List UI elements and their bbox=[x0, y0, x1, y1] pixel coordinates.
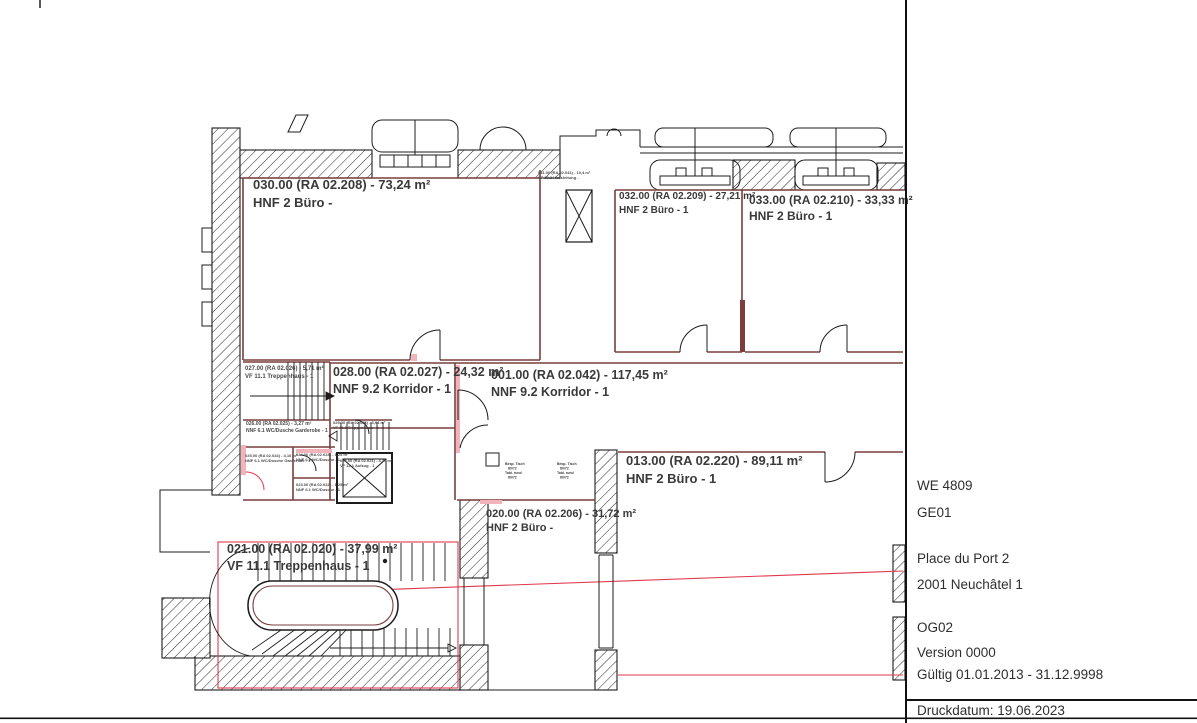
floor-plan-drawing: 030.00 (RA 02.208) - 73,24 m² HNF 2 Büro… bbox=[0, 0, 1197, 723]
room-label-013-line2: HNF 2 Büro - 1 bbox=[626, 471, 716, 486]
radiator-left-bay bbox=[380, 155, 450, 167]
title-block-we: WE 4809 bbox=[917, 478, 973, 493]
balcony-outline-1 bbox=[655, 128, 773, 147]
room-label-028-line1: 028.00 (RA 02.027) - 24,32 m² bbox=[333, 365, 503, 379]
room-label-024-line2: NNF 6.1 WC/Dusche - 1 bbox=[296, 457, 341, 462]
room-label-020-line2: HNF 2 Büro - bbox=[486, 522, 554, 534]
room-label-029-line2: VF 11.1 Treppenhaus - 1 bbox=[333, 425, 379, 430]
furniture-note-1-l3: Tabl. rund bbox=[505, 471, 522, 475]
facade-arch-left bbox=[480, 127, 526, 150]
furniture-note-2-l3: Tabl. rund bbox=[557, 471, 574, 475]
room-label-013-line1: 013.00 (RA 02.220) - 89,11 m² bbox=[626, 453, 803, 468]
title-block-version: Version 0000 bbox=[917, 645, 996, 660]
room-label-022-line2: VF 12.1 Aufzug - 1 bbox=[340, 463, 375, 468]
right-wall-stub-upper bbox=[893, 545, 905, 602]
title-block-address-line1: Place du Port 2 bbox=[917, 551, 1009, 566]
top-wall-left bbox=[240, 150, 372, 178]
room-label-033-line1: 033.00 (RA 02.210) - 33,33 m² bbox=[749, 193, 913, 207]
level-point-marker bbox=[383, 559, 387, 563]
title-block-separator bbox=[905, 699, 1197, 701]
radiator-bay-2 bbox=[803, 176, 869, 185]
stairwell-bottom-wall bbox=[195, 656, 460, 690]
room-label-030-line2: HNF 2 Büro - bbox=[253, 195, 332, 210]
top-wall-right bbox=[877, 163, 905, 190]
left-step-outline bbox=[160, 490, 212, 552]
room-label-023-line2: NNF 6.1 WC/Dusche - 1 bbox=[296, 487, 341, 492]
wall-021-020-upper bbox=[460, 500, 488, 578]
stair-oval-outer bbox=[248, 581, 398, 630]
room-label-021-line2: VF 11.1 Treppenhaus - 1 bbox=[227, 559, 369, 573]
roof-flag bbox=[288, 115, 308, 132]
furniture-note-1-l4: 80/72 bbox=[508, 476, 517, 480]
furniture-notes: Besp. Tisch 80/72 Tabl. rund 80/72 Besp.… bbox=[505, 462, 577, 480]
room-label-001-line1: 001.00 (RA 02.042) - 117,45 m² bbox=[491, 368, 668, 382]
left-bottom-block bbox=[162, 598, 210, 658]
room-label-020-line1: 020.00 (RA 02.206) - 31,72 m² bbox=[486, 508, 636, 520]
right-wall-stub-lower bbox=[893, 617, 905, 680]
furniture-note-1-l2: 80/72 bbox=[508, 467, 517, 471]
furniture-note-2-l1: Besp. Tisch bbox=[557, 462, 577, 466]
room-label-030-line1: 030.00 (RA 02.208) - 73,24 m² bbox=[253, 177, 431, 192]
room-label-028-line2: NNF 9.2 Korridor - 1 bbox=[333, 382, 451, 396]
furniture-note-2-l2: 80/72 bbox=[560, 467, 569, 471]
wall-020-013-upper bbox=[595, 450, 617, 553]
title-block-address-line2: 2001 Neuchâtel 1 bbox=[917, 577, 1023, 592]
wall-020-013-lower bbox=[595, 650, 617, 690]
left-wall bbox=[212, 128, 240, 495]
room-label-027-line2: VF 11.1 Treppenhaus - 1 bbox=[245, 374, 314, 380]
room-label-021-line1: 021.00 (RA 02.020) - 37,99 m² bbox=[227, 542, 397, 556]
room-label-001-line2: NNF 9.2 Korridor - 1 bbox=[491, 385, 609, 399]
room-label-031-line2: VF 10.2 Hausleitung - bbox=[538, 175, 579, 180]
shafts bbox=[337, 190, 592, 503]
title-block-divider bbox=[905, 0, 907, 723]
room-label-032-line1: 032.00 (RA 02.209) - 27,21 m² bbox=[619, 191, 756, 202]
top-wall-between-bays bbox=[733, 160, 795, 190]
radiator-bay-1 bbox=[660, 176, 730, 185]
room-label-026-line2: NNF 6.1 WC/Dusche Garderobe - 1 bbox=[246, 428, 328, 434]
balcony-outline-2 bbox=[790, 128, 886, 147]
floor-plan-page: 030.00 (RA 02.208) - 73,24 m² HNF 2 Büro… bbox=[0, 0, 1197, 723]
corridor-symbol bbox=[486, 453, 499, 466]
title-block-print-date: Druckdatum: 19.06.2023 bbox=[917, 703, 1065, 718]
room-label-026-line1: 026.00 (RA 02.025) - 3,27 m² bbox=[246, 421, 312, 427]
title-block-ge: GE01 bbox=[917, 505, 952, 520]
furniture-note-1-l1: Besp. Tisch bbox=[505, 462, 525, 466]
title-block-floor: OG02 bbox=[917, 620, 953, 635]
room-label-033-line2: HNF 2 Büro - 1 bbox=[749, 209, 833, 223]
room-label-027-line1: 027.00 (RA 02.026) - 5,71 m² bbox=[245, 365, 324, 372]
furniture-note-2-l4: 80/72 bbox=[560, 476, 569, 480]
wall-021-020-lower bbox=[460, 645, 488, 690]
room-label-032-line2: HNF 2 Büro - 1 bbox=[619, 205, 689, 216]
title-block-validity: Gültig 01.01.2013 - 31.12.9998 bbox=[917, 667, 1103, 682]
